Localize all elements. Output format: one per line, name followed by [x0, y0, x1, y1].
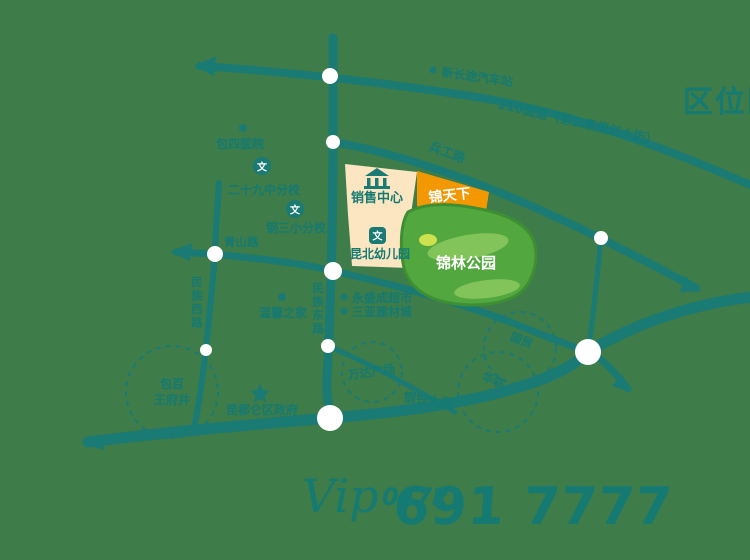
area-label-sales-center: 销售中心 — [351, 190, 403, 206]
park-pond — [419, 234, 437, 246]
phone-number: 691 7777 — [392, 477, 674, 537]
junction-dot-major — [317, 405, 343, 431]
poi-supermarket: 永盛成超市 — [351, 290, 412, 305]
arrow-west-qingshan — [170, 243, 192, 261]
building-column — [375, 178, 379, 186]
arrow-west-110 — [194, 56, 216, 76]
road-110-guodao — [200, 66, 750, 185]
location-dot-icon — [239, 124, 247, 132]
brand-script-logo: Vip — [302, 469, 379, 523]
building-column — [367, 178, 371, 186]
road-label-minzu-east: 民族东路 — [311, 282, 325, 336]
road-minor-east-connector — [588, 238, 601, 352]
poi-school-29: 二十九中分校 — [228, 182, 301, 197]
junction-dot — [321, 339, 335, 353]
junction-dot — [207, 246, 223, 262]
map-title: 区位图 — [683, 85, 750, 120]
poi-bus-station: 新长途汽车站 — [441, 64, 514, 89]
poi-school-g3: 钢三小分校 — [266, 220, 327, 235]
road-gangtie — [88, 297, 750, 442]
location-map-poster: 110国道（第二条规划大街） 兵工路 民族东路 民族西路 青山路 钢铁大街 新长… — [0, 0, 750, 560]
road-minzu-east — [327, 38, 333, 418]
junction-dot — [324, 262, 342, 280]
kindergarten-marker: 文 — [369, 227, 386, 244]
bullet-icon — [341, 294, 348, 301]
school-g3-marker: 文 — [286, 200, 304, 218]
school-29-marker: 文 — [253, 157, 271, 175]
road-label-minzu-west: 民族西路 — [190, 276, 204, 330]
hotline: Vip 0472 691 7777 — [302, 469, 674, 537]
junction-dot — [200, 344, 212, 356]
poi-building-material: 三亚建材城 — [352, 304, 412, 319]
area-label-park: 锦林公园 — [436, 254, 496, 272]
wen-glyph: 文 — [257, 161, 268, 174]
poi-hospital: 包四医院 — [215, 136, 264, 151]
poi-wenxin-home: 温馨之家 — [259, 305, 308, 320]
road-label-binggong: 兵工路 — [427, 139, 468, 166]
poi-wangfujing: 王府井 — [154, 392, 190, 407]
star-icon — [251, 384, 270, 402]
wen-glyph: 文 — [290, 204, 301, 217]
junction-dot-major — [575, 339, 601, 365]
road-label-110: 110国道（第二条规划大街） — [496, 96, 659, 147]
area-label-kindergarten: 昆北幼儿园 — [350, 246, 410, 261]
poi-baobai: 包百 — [159, 376, 184, 391]
road-label-qingshan: 青山路 — [224, 235, 259, 249]
junction-dot — [322, 68, 338, 84]
location-dot-icon — [278, 293, 286, 301]
bullet-icon — [430, 67, 437, 74]
bullet-icon — [341, 308, 348, 315]
building-base — [364, 186, 390, 189]
junction-dot — [594, 231, 608, 245]
wen-glyph: 文 — [373, 230, 384, 243]
map-graphic: 110国道（第二条规划大街） 兵工路 民族东路 民族西路 青山路 钢铁大街 新长… — [0, 0, 750, 560]
building-column — [383, 178, 387, 186]
poi-district-gov: 昆都仑区政府 — [226, 402, 298, 417]
junction-dot — [326, 135, 340, 149]
